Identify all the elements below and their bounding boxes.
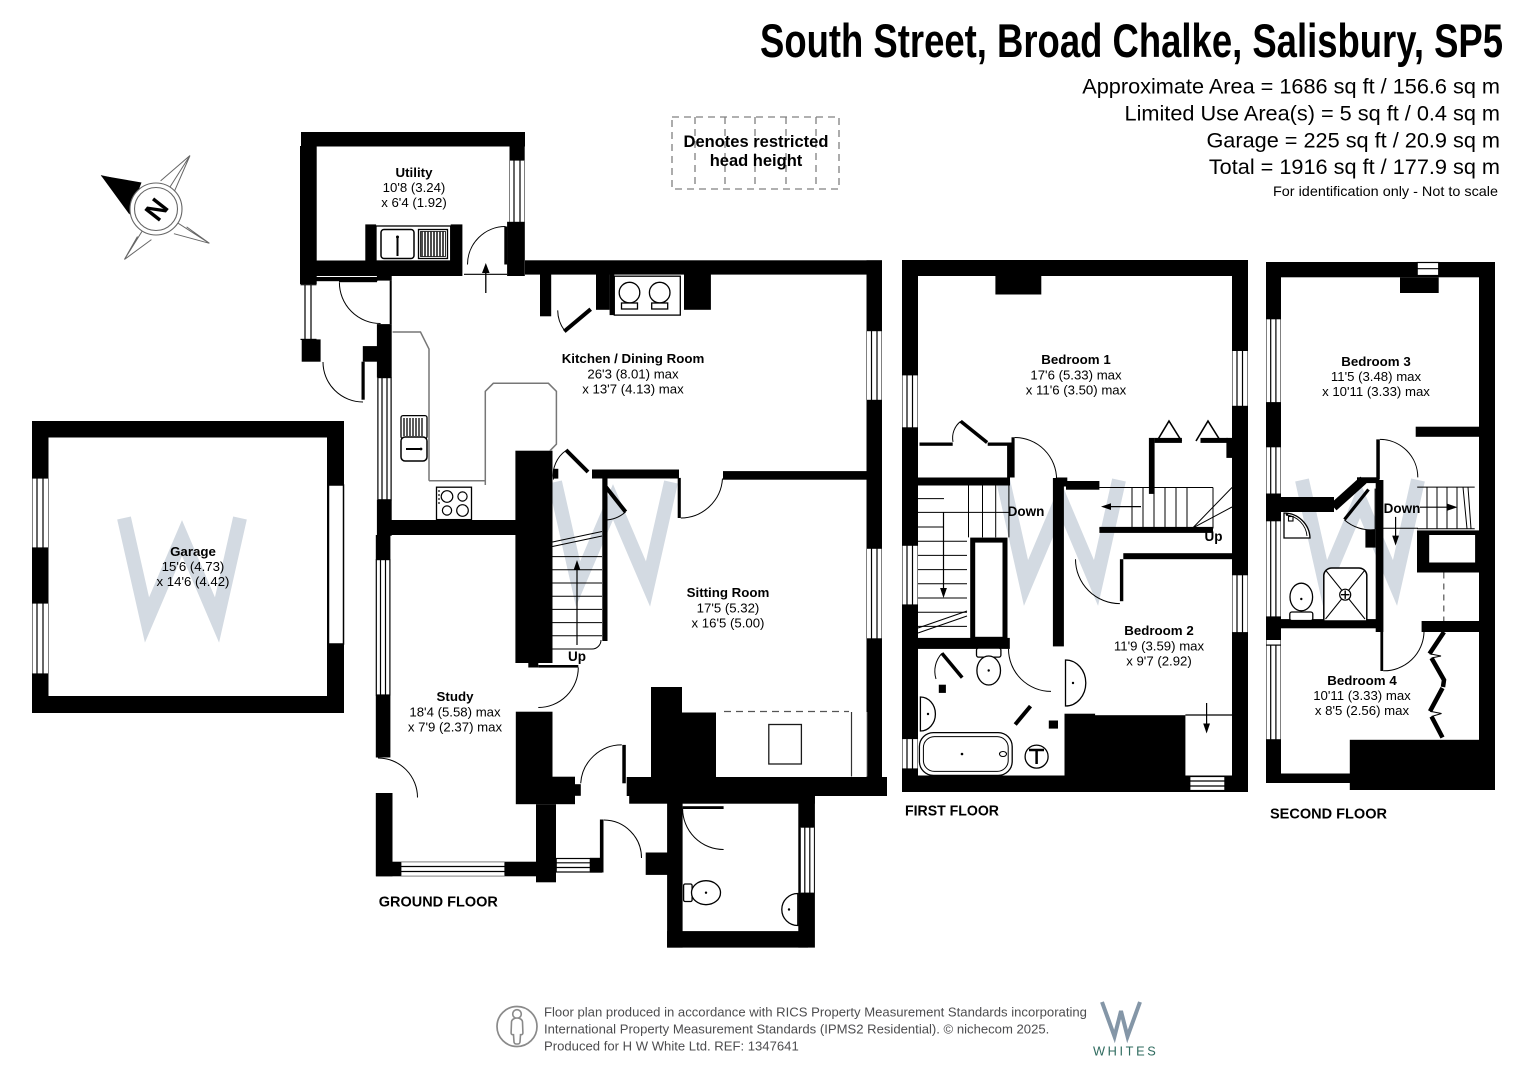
svg-text:WHITES: WHITES — [1093, 1044, 1158, 1059]
svg-text:x 16'5 (5.00): x 16'5 (5.00) — [692, 616, 765, 631]
svg-text:x 9'7 (2.92): x 9'7 (2.92) — [1126, 654, 1192, 669]
svg-text:Utility: Utility — [396, 165, 434, 180]
svg-text:GROUND FLOOR: GROUND FLOOR — [379, 894, 498, 911]
svg-text:International Property Measure: International Property Measurement Stand… — [544, 1022, 1049, 1037]
svg-text:x 7'9 (2.37) max: x 7'9 (2.37) max — [408, 720, 503, 735]
svg-text:x 14'6 (4.42): x 14'6 (4.42) — [157, 574, 230, 589]
svg-text:Floor plan produced in accorda: Floor plan produced in accordance with R… — [544, 1004, 1087, 1019]
svg-text:Limited Use Area(s) = 5 sq ft: Limited Use Area(s) = 5 sq ft / 0.4 sq m — [1125, 101, 1500, 126]
svg-text:Down: Down — [1008, 504, 1045, 519]
svg-text:11'9 (3.59) max: 11'9 (3.59) max — [1114, 639, 1205, 654]
svg-text:15'6 (4.73): 15'6 (4.73) — [162, 559, 225, 574]
svg-text:Bedroom 4: Bedroom 4 — [1327, 673, 1397, 688]
svg-text:17'5 (5.32): 17'5 (5.32) — [697, 601, 760, 616]
svg-text:Bedroom 3: Bedroom 3 — [1341, 354, 1410, 369]
svg-text:x 11'6 (3.50) max: x 11'6 (3.50) max — [1026, 383, 1127, 398]
svg-text:For identification only - Not: For identification only - Not to scale — [1273, 183, 1498, 199]
svg-text:Denotes restricted: Denotes restricted — [684, 133, 829, 151]
svg-text:10'8 (3.24): 10'8 (3.24) — [383, 180, 446, 195]
svg-text:Total = 1916 sq ft / 177.9 sq: Total = 1916 sq ft / 177.9 sq m — [1209, 154, 1500, 179]
svg-text:Sitting Room: Sitting Room — [687, 585, 770, 600]
svg-text:18'4 (5.58) max: 18'4 (5.58) max — [409, 705, 501, 720]
svg-text:x 13'7 (4.13) max: x 13'7 (4.13) max — [582, 382, 684, 397]
svg-text:x 6'4 (1.92): x 6'4 (1.92) — [381, 195, 447, 210]
svg-text:Kitchen / Dining Room: Kitchen / Dining Room — [562, 351, 705, 366]
svg-text:Approximate Area = 1686 sq ft: Approximate Area = 1686 sq ft / 156.6 sq… — [1082, 74, 1500, 99]
svg-text:10'11 (3.33) max: 10'11 (3.33) max — [1313, 688, 1411, 703]
svg-text:FIRST FLOOR: FIRST FLOOR — [905, 803, 999, 820]
svg-text:SECOND FLOOR: SECOND FLOOR — [1270, 806, 1387, 823]
svg-text:x 10'11 (3.33) max: x 10'11 (3.33) max — [1322, 384, 1430, 399]
svg-text:Bedroom 1: Bedroom 1 — [1041, 352, 1111, 367]
svg-text:x 8'5 (2.56) max: x 8'5 (2.56) max — [1315, 703, 1410, 718]
svg-text:17'6 (5.33) max: 17'6 (5.33) max — [1030, 368, 1122, 383]
svg-text:Down: Down — [1384, 501, 1421, 516]
svg-text:26'3 (8.01) max: 26'3 (8.01) max — [587, 367, 679, 382]
svg-text:Garage: Garage — [170, 544, 216, 559]
svg-text:South Street, Broad Chalke, Sa: South Street, Broad Chalke, Salisbury, S… — [760, 15, 1503, 68]
svg-text:Up: Up — [568, 649, 586, 664]
svg-text:11'5 (3.48) max: 11'5 (3.48) max — [1331, 369, 1422, 384]
svg-text:head height: head height — [710, 152, 803, 170]
svg-text:Study: Study — [437, 689, 475, 704]
svg-text:Produced for H W White Ltd.: Produced for H W White Ltd. REF: 1347641 — [544, 1039, 799, 1054]
svg-text:Garage = 225 sq ft / 20.9 sq m: Garage = 225 sq ft / 20.9 sq m — [1206, 128, 1500, 153]
svg-text:Bedroom 2: Bedroom 2 — [1124, 623, 1193, 638]
